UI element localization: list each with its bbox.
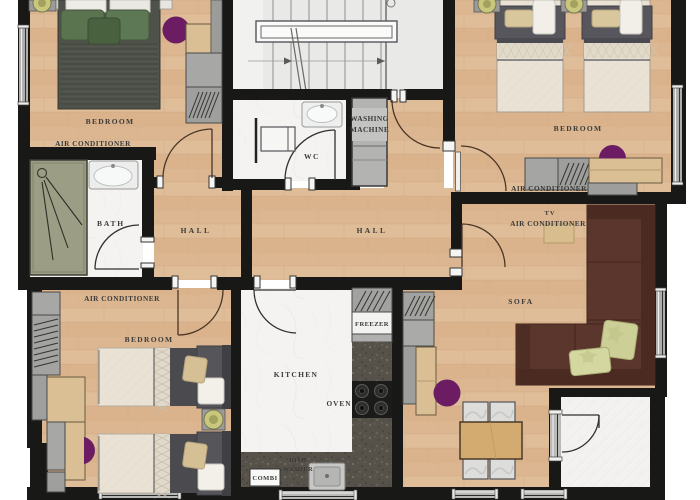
svg-text:AIR CONDITIONER: AIR CONDITIONER — [84, 294, 160, 303]
svg-text:WC: WC — [304, 152, 320, 161]
svg-text:AIR CONDITIONER: AIR CONDITIONER — [55, 139, 131, 148]
svg-text:KITCHEN: KITCHEN — [274, 370, 319, 379]
svg-text:BATH: BATH — [97, 219, 125, 228]
svg-text:BEDROOM: BEDROOM — [125, 335, 174, 344]
svg-text:BEDROOM: BEDROOM — [554, 124, 603, 133]
svg-text:FREEZER: FREEZER — [355, 321, 389, 328]
svg-text:BEDROOM: BEDROOM — [86, 117, 135, 126]
svg-text:WASHER: WASHER — [283, 466, 313, 473]
svg-text:TV: TV — [544, 210, 555, 217]
svg-text:HALL: HALL — [357, 226, 388, 235]
svg-text:DISH: DISH — [289, 457, 307, 464]
svg-text:HALL: HALL — [181, 226, 212, 235]
svg-text:AIR CONDITIONER: AIR CONDITIONER — [511, 184, 587, 193]
svg-text:OVEN: OVEN — [326, 399, 351, 408]
svg-text:WASHING: WASHING — [350, 114, 389, 123]
svg-text:COMBI: COMBI — [252, 475, 277, 482]
svg-text:SOFA: SOFA — [508, 297, 533, 306]
svg-text:MACHINE: MACHINE — [350, 125, 389, 134]
svg-text:AIR CONDITIONER: AIR CONDITIONER — [510, 219, 586, 228]
